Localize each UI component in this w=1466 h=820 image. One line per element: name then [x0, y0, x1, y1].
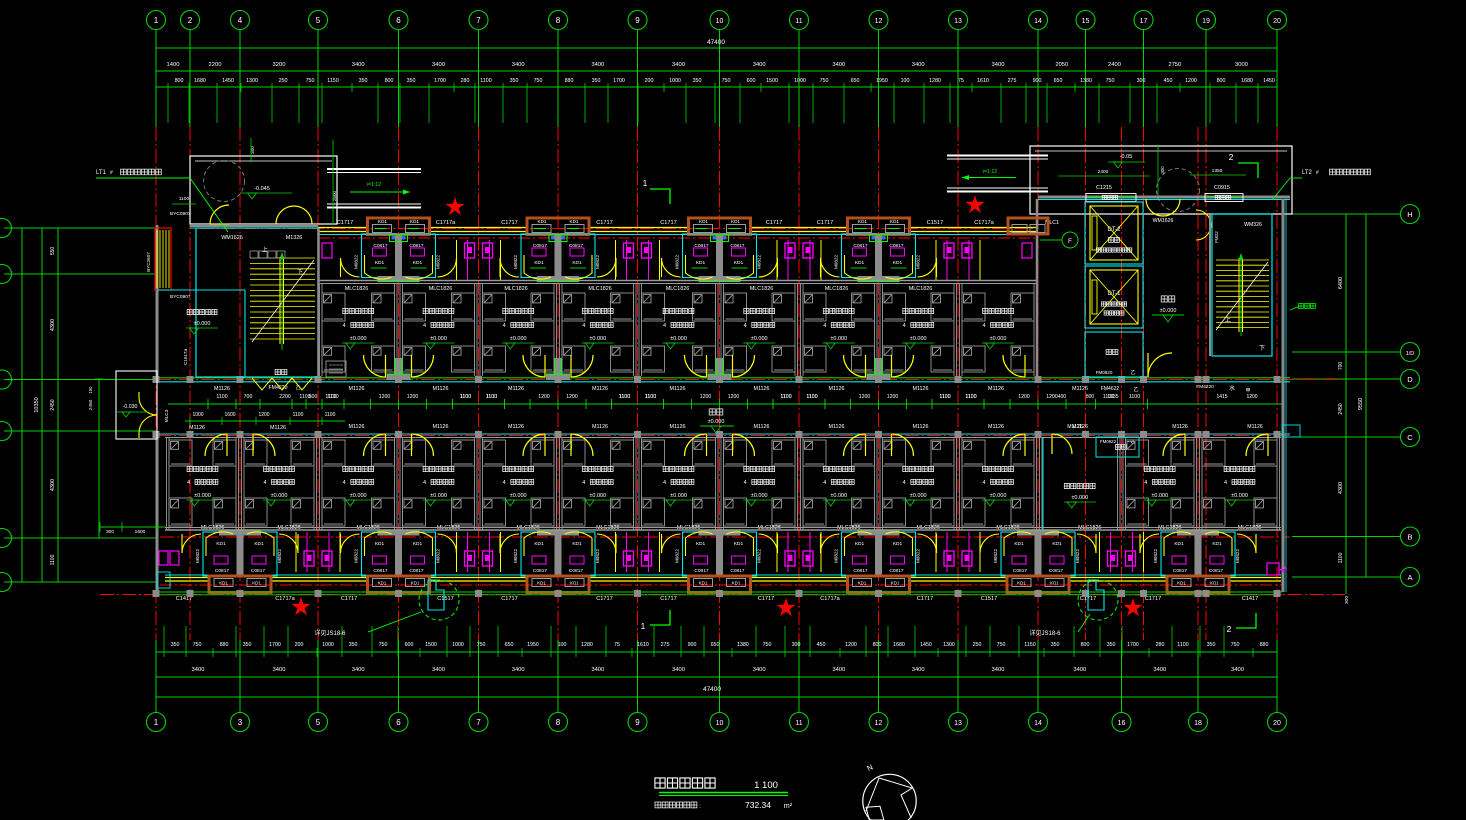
- svg-text:20: 20: [1273, 18, 1281, 25]
- svg-text:8: 8: [556, 16, 561, 25]
- svg-text:250: 250: [973, 642, 982, 648]
- svg-text:M1126: M1126: [828, 424, 844, 430]
- svg-text:1: 1: [643, 178, 648, 188]
- svg-text:上: 上: [1225, 316, 1231, 324]
- svg-text:1100: 1100: [619, 394, 630, 400]
- svg-text:350: 350: [1207, 642, 1216, 648]
- svg-text:C0817: C0817: [533, 568, 547, 574]
- svg-text:300: 300: [1160, 166, 1165, 174]
- svg-text:乙: 乙: [1133, 386, 1138, 393]
- svg-text:M1126: M1126: [348, 424, 364, 430]
- svg-text:C: C: [1407, 433, 1413, 442]
- svg-text:450: 450: [1164, 78, 1173, 84]
- svg-text:4: 4: [744, 480, 747, 486]
- svg-text:MLC1826: MLC1826: [588, 286, 611, 292]
- svg-text:KD1: KD1: [890, 219, 899, 224]
- svg-text:1200: 1200: [1046, 394, 1058, 400]
- svg-text:C0817: C0817: [694, 243, 708, 249]
- svg-text:2050: 2050: [1055, 62, 1068, 68]
- svg-text:KD1: KD1: [858, 581, 867, 586]
- svg-text:KD1: KD1: [570, 581, 579, 586]
- svg-text:C0817: C0817: [889, 243, 903, 249]
- svg-text:±0.000: ±0.000: [1231, 493, 1248, 499]
- svg-text:1200: 1200: [1018, 394, 1030, 400]
- svg-text:4: 4: [1144, 480, 1147, 486]
- svg-text:C1717: C1717: [660, 596, 676, 602]
- svg-text:6400: 6400: [1338, 277, 1344, 289]
- svg-text:M0822: M0822: [513, 549, 518, 563]
- svg-text:LT1: LT1: [96, 170, 107, 176]
- svg-text:MLC1826: MLC1826: [504, 286, 527, 292]
- svg-text:4: 4: [582, 323, 585, 329]
- svg-text:M0822: M0822: [1235, 549, 1240, 563]
- svg-text:4: 4: [982, 323, 985, 329]
- svg-text:M1126: M1126: [988, 424, 1004, 430]
- svg-text:±0.000: ±0.000: [510, 493, 527, 499]
- svg-text:4: 4: [663, 323, 666, 329]
- svg-text:C1717: C1717: [817, 220, 833, 226]
- svg-text:75: 75: [614, 642, 620, 648]
- svg-text:C1717: C1717: [766, 220, 782, 226]
- svg-text:350: 350: [693, 78, 702, 84]
- svg-text:13: 13: [954, 18, 962, 25]
- svg-text:800: 800: [1086, 394, 1095, 400]
- svg-text:M0822: M0822: [436, 255, 441, 269]
- svg-text:750: 750: [477, 642, 486, 648]
- svg-text:275: 275: [661, 642, 670, 648]
- svg-text:3400: 3400: [273, 667, 286, 673]
- svg-text:±0.000: ±0.000: [708, 419, 725, 425]
- svg-text:KD1: KD1: [538, 219, 547, 224]
- svg-text:KD1: KD1: [1210, 581, 1219, 586]
- svg-text:乙: 乙: [1130, 369, 1135, 376]
- svg-text:±0.000: ±0.000: [1160, 308, 1177, 314]
- svg-text:DT-2: DT-2: [1107, 227, 1121, 233]
- svg-text:KD1: KD1: [855, 260, 865, 266]
- svg-text:M1126: M1126: [753, 386, 769, 392]
- svg-text:M1126: M1126: [432, 386, 448, 392]
- svg-text:650: 650: [1054, 78, 1063, 84]
- svg-text:750: 750: [379, 642, 388, 648]
- svg-text:1450: 1450: [920, 642, 932, 648]
- svg-text:2: 2: [188, 16, 193, 25]
- svg-text:800: 800: [1081, 642, 1090, 648]
- svg-text:1600: 1600: [135, 529, 146, 535]
- svg-text:750: 750: [193, 642, 202, 648]
- svg-text:550: 550: [50, 247, 56, 256]
- svg-text:4: 4: [503, 480, 506, 486]
- svg-text:350: 350: [510, 78, 519, 84]
- svg-text:KD1: KD1: [1052, 541, 1062, 547]
- svg-text:M0822: M0822: [436, 549, 441, 563]
- svg-text:20: 20: [1273, 720, 1281, 727]
- svg-text:MLC1826: MLC1826: [666, 286, 689, 292]
- svg-text:BYC0907: BYC0907: [170, 294, 191, 300]
- svg-text:±0.000: ±0.000: [990, 493, 1007, 499]
- svg-text:1400: 1400: [167, 62, 180, 68]
- svg-text:M1126: M1126: [669, 386, 685, 392]
- svg-text:M0822: M0822: [916, 255, 921, 269]
- svg-text:3400: 3400: [912, 62, 925, 68]
- svg-text:M0822: M0822: [354, 549, 359, 563]
- svg-text:M1126: M1126: [1072, 386, 1088, 392]
- svg-text:C0915: C0915: [1214, 185, 1230, 191]
- svg-text:MLC1826: MLC1826: [345, 286, 368, 292]
- svg-text:1100: 1100: [480, 78, 491, 84]
- svg-text:M1126: M1126: [592, 386, 608, 392]
- svg-text:17: 17: [1140, 18, 1148, 25]
- svg-text:±0.000: ±0.000: [670, 493, 687, 499]
- svg-text:KD1: KD1: [410, 219, 419, 224]
- svg-text:C0817: C0817: [215, 568, 229, 574]
- svg-text:1450: 1450: [1263, 78, 1275, 84]
- svg-text:2400: 2400: [1108, 62, 1121, 68]
- svg-text:18: 18: [1194, 720, 1202, 727]
- svg-text:-0.045: -0.045: [254, 186, 270, 192]
- svg-text:1100: 1100: [645, 394, 656, 400]
- svg-text:WM326: WM326: [1244, 222, 1262, 228]
- svg-text:1280: 1280: [581, 642, 593, 648]
- svg-text:1000: 1000: [322, 642, 334, 648]
- svg-text:±0.000: ±0.000: [510, 336, 527, 342]
- svg-text:1200: 1200: [728, 394, 740, 400]
- svg-text:2450: 2450: [88, 399, 94, 410]
- svg-text:1150: 1150: [327, 78, 338, 84]
- svg-text:BYC0907: BYC0907: [170, 211, 191, 217]
- svg-text:C0817: C0817: [409, 568, 423, 574]
- svg-text:C0817: C0817: [373, 243, 387, 249]
- svg-text:C1717a: C1717a: [275, 596, 295, 602]
- svg-text:200: 200: [645, 78, 654, 84]
- svg-text:F: F: [1068, 238, 1072, 245]
- svg-text:750: 750: [306, 78, 315, 84]
- svg-text:1: 1: [154, 718, 159, 727]
- svg-text:i=1:12: i=1:12: [367, 182, 381, 188]
- svg-text:1100: 1100: [780, 394, 791, 400]
- svg-text:C1717: C1717: [337, 220, 353, 226]
- svg-text:1100: 1100: [486, 394, 497, 400]
- svg-text:KD1: KD1: [252, 581, 261, 586]
- svg-text:WM1626: WM1626: [1153, 218, 1174, 224]
- svg-text:1100: 1100: [965, 394, 976, 400]
- svg-text:3400: 3400: [591, 62, 604, 68]
- svg-text:13: 13: [954, 720, 962, 727]
- svg-text:19: 19: [1202, 18, 1210, 25]
- svg-text:MLC1826: MLC1826: [429, 286, 452, 292]
- svg-text:3400: 3400: [832, 667, 845, 673]
- svg-text:1200: 1200: [566, 394, 578, 400]
- svg-text:KD1: KD1: [378, 219, 387, 224]
- svg-text:MLC3: MLC3: [164, 409, 170, 422]
- svg-text:350: 350: [349, 642, 358, 648]
- svg-text:B: B: [1407, 533, 1412, 542]
- svg-text:C1717: C1717: [501, 596, 517, 602]
- svg-text:3400: 3400: [753, 667, 766, 673]
- svg-text:3400: 3400: [1153, 667, 1166, 673]
- svg-text:M1126: M1126: [1247, 424, 1263, 430]
- svg-text:1700: 1700: [613, 78, 625, 84]
- svg-text:3: 3: [238, 718, 243, 727]
- svg-text:3400: 3400: [992, 667, 1005, 673]
- svg-text:3400: 3400: [992, 62, 1005, 68]
- svg-text:M1126: M1126: [912, 424, 928, 430]
- svg-text:100: 100: [901, 78, 910, 84]
- svg-text:100: 100: [558, 642, 567, 648]
- svg-text:M1126: M1126: [508, 386, 524, 392]
- svg-text:详见JS18-6: 详见JS18-6: [1029, 629, 1061, 637]
- svg-text:11: 11: [795, 18, 802, 25]
- svg-text:DT-1: DT-1: [1107, 291, 1121, 297]
- svg-text:C0817: C0817: [1013, 568, 1027, 574]
- svg-text:1000: 1000: [452, 642, 464, 648]
- svg-text:1000: 1000: [192, 412, 203, 418]
- svg-text:3400: 3400: [352, 667, 365, 673]
- svg-text:16: 16: [1118, 720, 1126, 727]
- svg-text:1100: 1100: [1177, 642, 1188, 648]
- svg-text:KD1: KD1: [411, 581, 420, 586]
- svg-text:280: 280: [461, 78, 470, 84]
- svg-text:1680: 1680: [1241, 78, 1253, 84]
- svg-text:3400: 3400: [1231, 667, 1244, 673]
- svg-text:750: 750: [1106, 78, 1115, 84]
- svg-text:1100: 1100: [939, 394, 950, 400]
- svg-text:KD1: KD1: [1177, 581, 1186, 586]
- svg-text:280: 280: [1156, 642, 1165, 648]
- svg-text:880: 880: [1260, 642, 1269, 648]
- svg-text:3400: 3400: [432, 62, 445, 68]
- svg-text:±0.000: ±0.000: [830, 493, 847, 499]
- svg-text:4: 4: [343, 480, 346, 486]
- svg-text:FM4622: FM4622: [1101, 386, 1120, 392]
- svg-text:3400: 3400: [672, 62, 685, 68]
- svg-text:800: 800: [175, 78, 184, 84]
- svg-text:3400: 3400: [512, 667, 525, 673]
- svg-text:M0822: M0822: [993, 549, 998, 563]
- svg-text:4: 4: [503, 323, 506, 329]
- svg-text:14: 14: [1034, 18, 1042, 25]
- svg-text:甲: 甲: [1246, 388, 1251, 394]
- svg-text:1200: 1200: [859, 394, 871, 400]
- svg-text:±0.000: ±0.000: [430, 336, 447, 342]
- svg-text:FM22: FM22: [1214, 231, 1219, 243]
- svg-text:9550: 9550: [1358, 398, 1364, 410]
- svg-text:M0822: M0822: [675, 549, 680, 563]
- svg-text:KD1: KD1: [534, 260, 544, 266]
- svg-text:KD1: KD1: [572, 541, 582, 547]
- svg-text:下: 下: [297, 269, 303, 276]
- svg-text:275: 275: [1008, 78, 1017, 84]
- svg-text:C0817: C0817: [1173, 568, 1187, 574]
- svg-text:±0.000: ±0.000: [589, 336, 606, 342]
- svg-text:C1517: C1517: [927, 220, 943, 226]
- svg-text:2450: 2450: [1338, 403, 1344, 414]
- svg-text:350: 350: [1107, 642, 1116, 648]
- svg-text:FM4220: FM4220: [1196, 384, 1214, 390]
- svg-text:KD1: KD1: [731, 219, 740, 224]
- svg-text:±0.000: ±0.000: [589, 493, 606, 499]
- svg-text:1100: 1100: [1129, 394, 1140, 400]
- svg-text:1200: 1200: [407, 394, 419, 400]
- svg-text:350: 350: [359, 78, 368, 84]
- svg-text:C1717: C1717: [596, 596, 612, 602]
- svg-text:6: 6: [396, 718, 401, 727]
- svg-text:3400: 3400: [352, 62, 365, 68]
- svg-text:600: 600: [747, 78, 756, 84]
- svg-text:1680: 1680: [893, 642, 905, 648]
- svg-text:详见JS18-6: 详见JS18-6: [314, 629, 346, 637]
- svg-text:M0822: M0822: [1075, 549, 1080, 563]
- svg-text:KD1: KD1: [1014, 541, 1024, 547]
- svg-text:M0822: M0822: [757, 549, 762, 563]
- svg-text:732.34: 732.34: [745, 800, 771, 810]
- svg-text:M1126: M1126: [214, 386, 230, 392]
- svg-text:i=1:12: i=1:12: [983, 169, 997, 175]
- svg-text:C0817: C0817: [251, 568, 265, 574]
- svg-text:1200: 1200: [258, 412, 269, 418]
- svg-text:2200: 2200: [209, 62, 222, 68]
- svg-text:C0817: C0817: [730, 568, 744, 574]
- svg-text:350: 350: [1051, 642, 1060, 648]
- svg-text:1415: 1415: [1216, 394, 1227, 400]
- svg-text:±0.000: ±0.000: [271, 493, 288, 499]
- svg-text:M1126: M1126: [669, 424, 685, 430]
- svg-text:700: 700: [244, 394, 253, 400]
- svg-text:2200: 2200: [279, 394, 291, 400]
- svg-text:M0822: M0822: [916, 549, 921, 563]
- svg-text:3400: 3400: [192, 667, 205, 673]
- svg-text:±0.000: ±0.000: [670, 336, 687, 342]
- svg-text:1100: 1100: [1338, 552, 1344, 563]
- svg-text:7: 7: [476, 16, 481, 25]
- svg-text:KD1: KD1: [413, 541, 423, 547]
- svg-text:C1717a: C1717a: [974, 220, 994, 226]
- svg-text:KD1: KD1: [734, 260, 744, 266]
- svg-text:M0822: M0822: [354, 255, 359, 269]
- svg-text:MLC1826: MLC1826: [909, 286, 932, 292]
- svg-text:750: 750: [820, 78, 829, 84]
- svg-text:C1717: C1717: [596, 220, 612, 226]
- svg-text:M1126: M1126: [828, 386, 844, 392]
- svg-text:KD1: KD1: [699, 581, 708, 586]
- svg-text:KD1: KD1: [699, 219, 708, 224]
- svg-text:8: 8: [556, 718, 561, 727]
- svg-text:1000: 1000: [794, 78, 806, 84]
- svg-text:#: #: [1316, 170, 1319, 176]
- svg-text:4: 4: [423, 323, 426, 329]
- svg-text:880: 880: [220, 642, 229, 648]
- svg-text:4: 4: [903, 323, 906, 329]
- svg-text:15: 15: [1082, 18, 1090, 25]
- svg-text:C0817: C0817: [373, 568, 387, 574]
- svg-text:KD1: KD1: [1174, 541, 1184, 547]
- svg-text:C0817: C0817: [853, 243, 867, 249]
- svg-text:3400: 3400: [672, 667, 685, 673]
- svg-text:47400: 47400: [703, 686, 721, 693]
- svg-text:FM0622: FM0622: [1100, 439, 1117, 444]
- svg-text:M1126: M1126: [753, 424, 769, 430]
- svg-text:KD1: KD1: [254, 541, 264, 547]
- svg-text:4: 4: [1224, 480, 1227, 486]
- svg-text:M0822: M0822: [675, 255, 680, 269]
- svg-text:KD1: KD1: [893, 260, 903, 266]
- svg-text:C1717: C1717: [758, 596, 774, 602]
- svg-text:KD1: KD1: [855, 541, 865, 547]
- svg-text:1950: 1950: [527, 642, 539, 648]
- svg-text:350: 350: [407, 78, 416, 84]
- svg-text:4300: 4300: [50, 319, 56, 331]
- svg-text:4300: 4300: [1338, 482, 1344, 494]
- svg-text:C1517a: C1517a: [183, 349, 188, 366]
- svg-text:KD1: KD1: [413, 260, 423, 266]
- svg-text:M1126: M1126: [508, 424, 524, 430]
- svg-text:M1126: M1126: [432, 424, 448, 430]
- svg-text:1200: 1200: [1185, 78, 1197, 84]
- svg-text:M1126: M1126: [988, 386, 1004, 392]
- svg-text:C0817: C0817: [1209, 568, 1223, 574]
- svg-text:KD1: KD1: [216, 541, 226, 547]
- svg-text:1100: 1100: [327, 394, 338, 400]
- svg-text:M1126: M1126: [592, 424, 608, 430]
- svg-text:C0817: C0817: [533, 243, 547, 249]
- svg-text:1335: 1335: [1107, 394, 1118, 400]
- svg-text:M0822: M0822: [513, 255, 518, 269]
- svg-text:350: 350: [243, 642, 252, 648]
- svg-text:600: 600: [405, 642, 414, 648]
- svg-text:KD1: KD1: [858, 219, 867, 224]
- svg-text:1100: 1100: [325, 412, 336, 418]
- svg-text:1000: 1000: [669, 78, 681, 84]
- svg-text:3400: 3400: [832, 62, 845, 68]
- svg-text:±0.000: ±0.000: [350, 493, 367, 499]
- svg-text:1600: 1600: [224, 412, 235, 418]
- svg-text:M0822: M0822: [595, 549, 600, 563]
- svg-text:C0817: C0817: [853, 568, 867, 574]
- svg-text:12: 12: [875, 18, 883, 25]
- svg-text:750: 750: [1231, 642, 1240, 648]
- svg-text:MLC1826: MLC1826: [750, 286, 773, 292]
- svg-text:C1717: C1717: [501, 220, 517, 226]
- svg-text:1100: 1100: [806, 394, 817, 400]
- svg-text:1500: 1500: [425, 642, 437, 648]
- svg-text:1380: 1380: [1080, 78, 1092, 84]
- svg-text:C0817: C0817: [569, 243, 583, 249]
- svg-text:KD1: KD1: [891, 581, 900, 586]
- svg-text:2: 2: [1229, 152, 1234, 162]
- svg-text:±0.000: ±0.000: [990, 336, 1007, 342]
- svg-text:1610: 1610: [637, 642, 649, 648]
- svg-text:LT2: LT2: [1302, 170, 1313, 176]
- svg-text:3400: 3400: [512, 62, 525, 68]
- svg-text:1300: 1300: [943, 642, 955, 648]
- svg-text:1610: 1610: [977, 78, 989, 84]
- svg-text:KD1: KD1: [1050, 581, 1059, 586]
- svg-text:±0.000: ±0.000: [194, 321, 211, 327]
- svg-text:KD1: KD1: [893, 541, 903, 547]
- svg-text:M0822: M0822: [757, 255, 762, 269]
- svg-text:4: 4: [744, 323, 747, 329]
- svg-text:500: 500: [309, 394, 318, 400]
- svg-text:350: 350: [592, 78, 601, 84]
- svg-text:1380: 1380: [737, 642, 749, 648]
- svg-text:C1717: C1717: [660, 220, 676, 226]
- svg-text:1200: 1200: [700, 394, 712, 400]
- svg-text:H: H: [1407, 210, 1412, 219]
- svg-text:750: 750: [534, 78, 543, 84]
- svg-text:水: 水: [1229, 384, 1235, 392]
- svg-text:KD1: KD1: [1212, 541, 1222, 547]
- svg-text:10: 10: [716, 720, 724, 727]
- svg-text:-0.05: -0.05: [1120, 154, 1133, 160]
